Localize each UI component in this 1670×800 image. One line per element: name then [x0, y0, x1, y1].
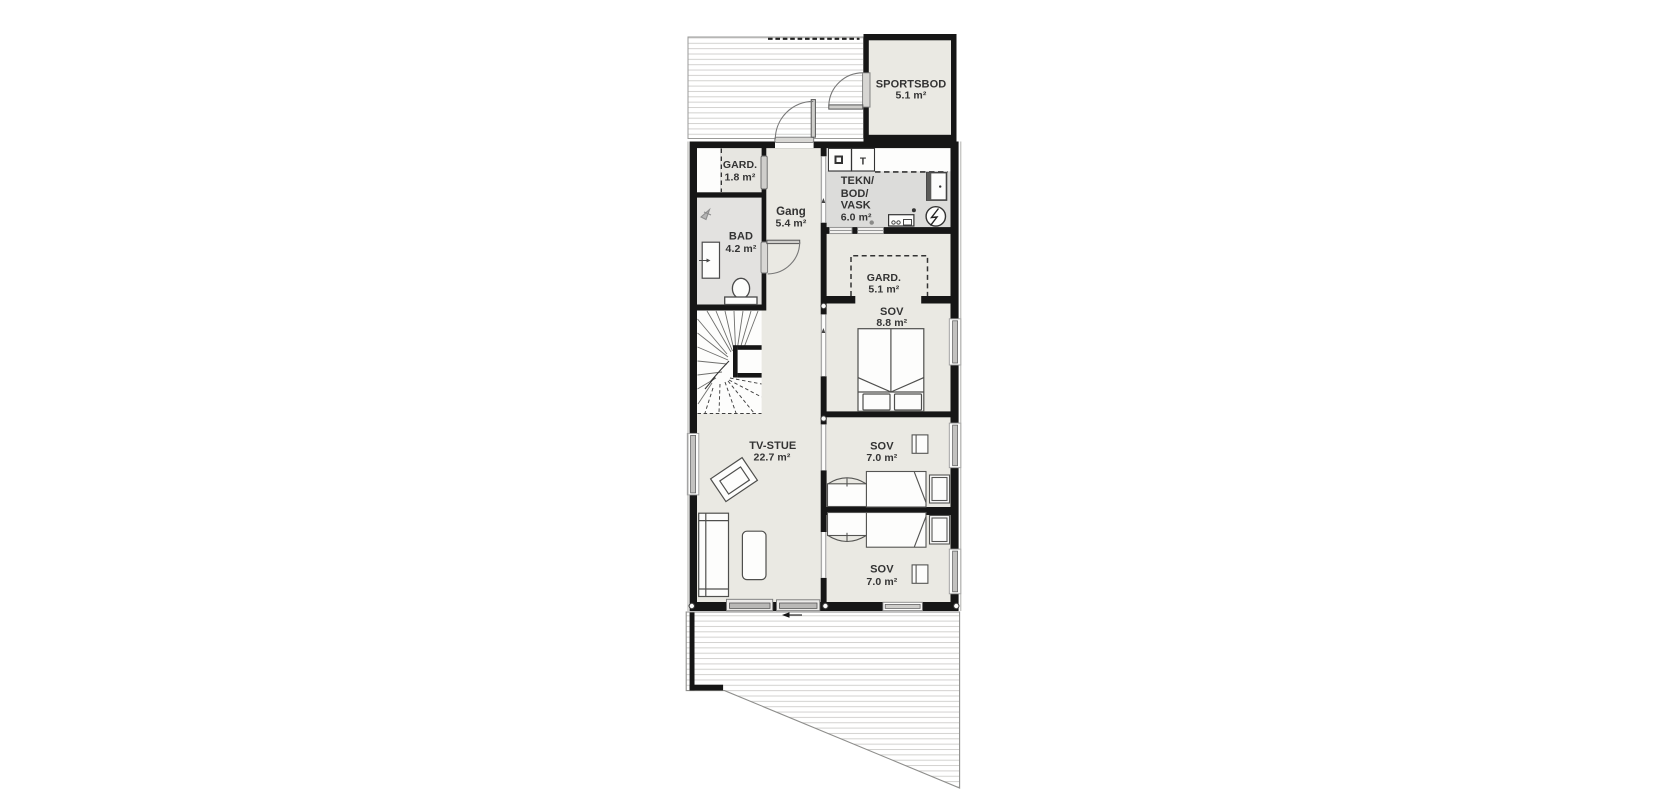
svg-text:5.1 m²: 5.1 m² [896, 90, 927, 102]
svg-text:5.4 m²: 5.4 m² [776, 218, 807, 230]
svg-text:SPORTSBOD: SPORTSBOD [876, 78, 947, 90]
svg-text:TV-STUE: TV-STUE [749, 440, 796, 452]
svg-text:SOV: SOV [870, 564, 894, 576]
svg-text:VASK: VASK [841, 200, 871, 212]
svg-text:7.0 m²: 7.0 m² [866, 576, 897, 588]
svg-text:SOV: SOV [870, 440, 894, 452]
svg-text:T: T [860, 157, 866, 168]
svg-text:GARD.: GARD. [867, 272, 901, 284]
svg-text:22.7 m²: 22.7 m² [754, 451, 791, 463]
svg-text:5.1 m²: 5.1 m² [868, 283, 899, 295]
svg-text:BOD/: BOD/ [841, 188, 869, 200]
svg-text:GARD.: GARD. [723, 159, 757, 171]
svg-text:1.8 m²: 1.8 m² [725, 172, 756, 184]
svg-text:6.0 m²: 6.0 m² [841, 211, 872, 223]
svg-text:TEKN/: TEKN/ [841, 175, 875, 187]
svg-text:Gang: Gang [776, 206, 806, 218]
svg-text:BAD: BAD [729, 231, 753, 243]
svg-text:7.0 m²: 7.0 m² [866, 452, 897, 464]
svg-text:8.8 m²: 8.8 m² [876, 317, 907, 329]
svg-text:4.2 m²: 4.2 m² [726, 243, 757, 255]
